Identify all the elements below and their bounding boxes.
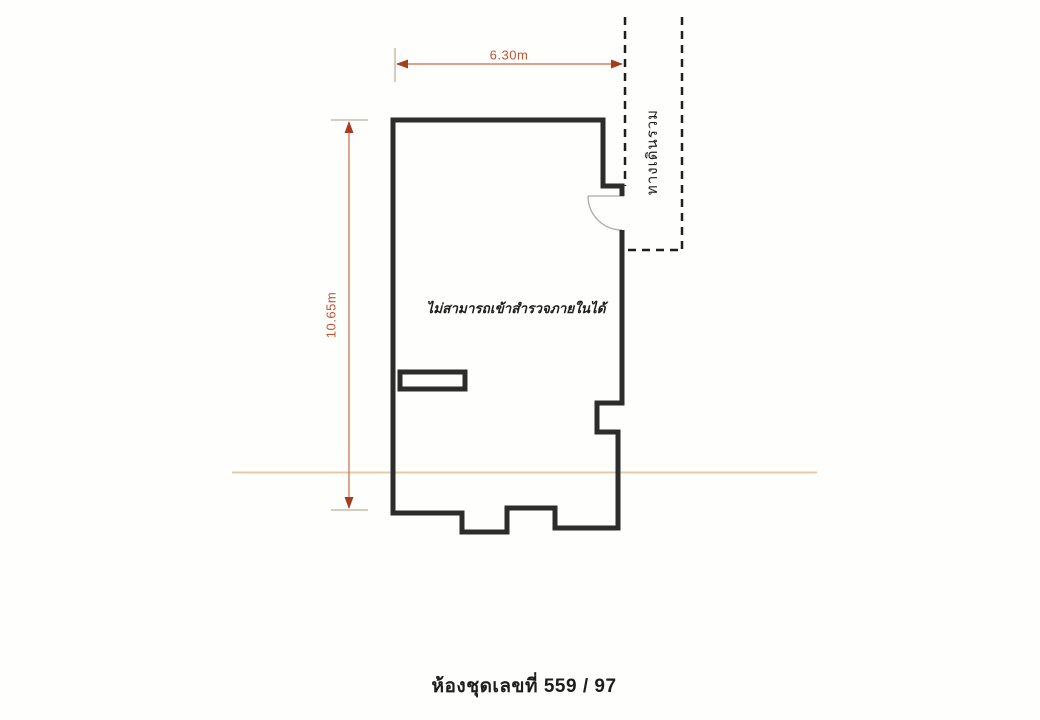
width-dimension-label: 6.30m xyxy=(490,48,529,63)
floor-plan-page: 6.30m 10.65m ทางเดินรวม ไม่สามารถเข้าสำร… xyxy=(0,0,1040,720)
arrowhead-down-icon xyxy=(345,497,354,509)
floor-plan-canvas xyxy=(0,0,1040,720)
door-swing xyxy=(588,196,624,230)
room-outline xyxy=(393,120,622,532)
arrowhead-right-icon xyxy=(611,60,623,69)
arrowhead-left-icon xyxy=(396,60,408,69)
door-swing-arc xyxy=(588,196,622,230)
arrowhead-up-icon xyxy=(345,121,354,133)
unit-caption: ห้องชุดเลขที่ 559 / 97 xyxy=(431,671,616,701)
height-dimension-label: 10.65m xyxy=(324,292,339,338)
corridor-label: ทางเดินรวม xyxy=(640,109,664,195)
interior-note: ไม่สามารถเข้าสำรวจภายในได้ xyxy=(426,297,605,319)
interior-fixture xyxy=(400,372,465,389)
